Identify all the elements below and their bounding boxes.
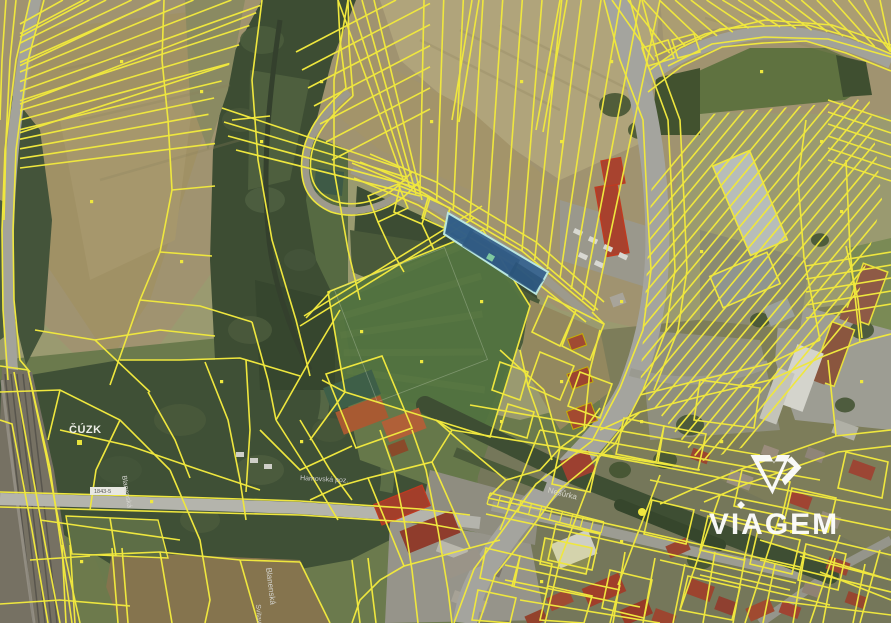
svg-text:ČÚZK: ČÚZK (69, 423, 102, 436)
svg-text:1843-5: 1843-5 (94, 489, 111, 495)
svg-text:VIAGEM: VIAGEM (709, 508, 839, 541)
